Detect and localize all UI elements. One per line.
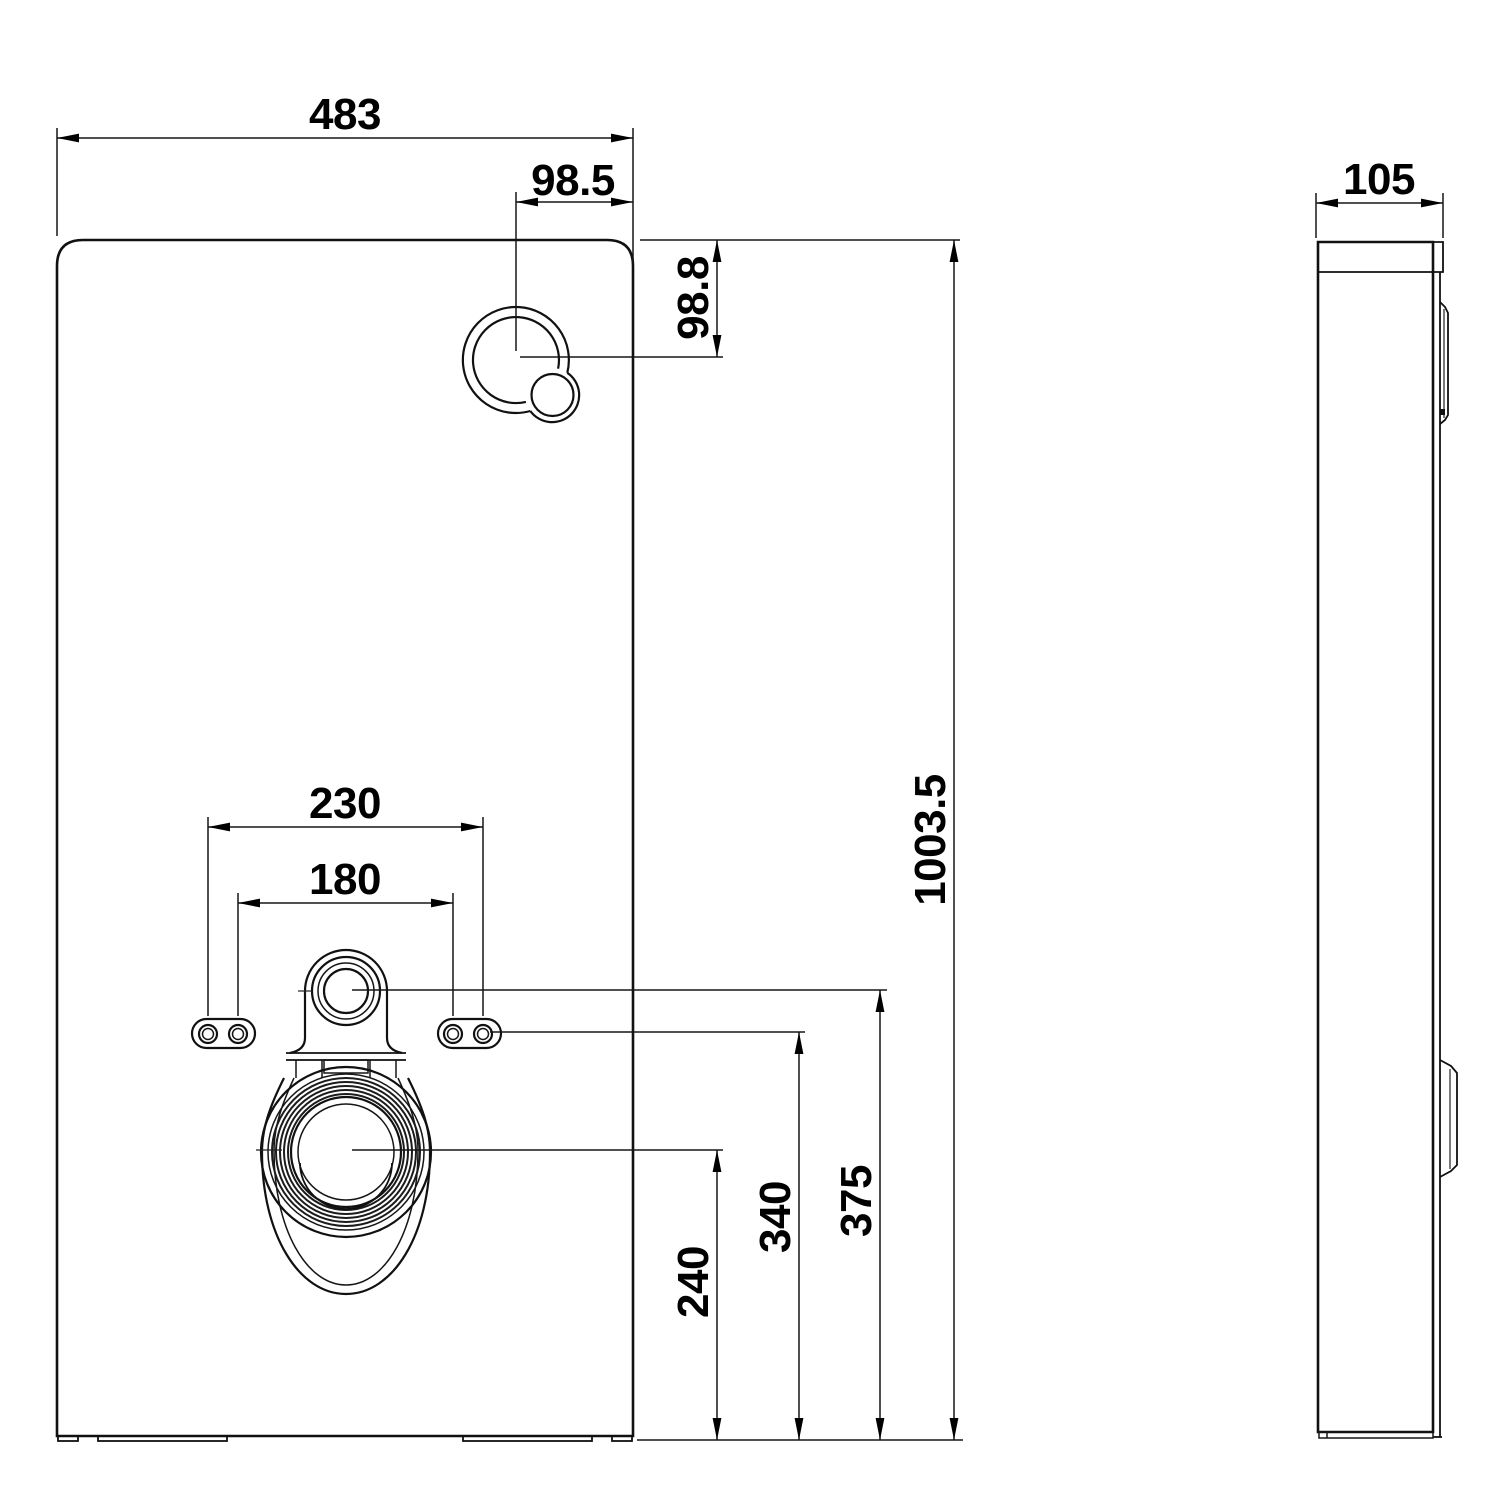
dim-depth: 105 [1316,155,1443,238]
outlet-elbow-arc [300,1163,392,1209]
inlet-housing [290,950,402,1053]
side-view [1318,242,1457,1438]
dim-label-fixing-holes-height: 340 [751,1181,800,1253]
outlet-housing-outer [262,1078,430,1294]
dim-label-depth: 105 [1343,155,1415,204]
dim-label-overall-height: 1003.5 [906,774,955,906]
dim-label-button-offset-x: 98.5 [531,156,615,205]
technical-drawing: 483 98.5 98.8 230 180 375 340 [0,0,1500,1500]
water-inlet [286,950,406,1078]
outlet-bore-inner [298,1104,394,1200]
dim-button-offset-y: 98.8 [520,240,723,357]
dim-label-overall-width: 483 [309,90,381,139]
inlet-ring-outer [312,957,380,1025]
side-flush-unit-latch [1440,409,1445,415]
outlet-thread-rings [272,1078,420,1226]
dim-label-fixing-span-outer: 230 [309,779,381,828]
outlet-flange-outer [261,1067,431,1237]
dim-label-fixing-span-inner: 180 [309,855,381,904]
side-top-cap-edge [1433,242,1443,272]
inlet-ring-mid [318,963,374,1019]
fixing-bracket-right [438,1019,501,1048]
side-connection-block [1440,1060,1457,1177]
dim-fixing-holes-height: 340 [490,1032,805,1440]
dim-label-inlet-center-height: 375 [832,1165,881,1237]
side-panel-outline [1318,242,1433,1432]
dim-label-button-offset-y: 98.8 [669,256,718,340]
dim-inlet-center-height: 375 [352,990,887,1440]
drain-outlet [256,1067,431,1294]
front-view [57,240,633,1441]
flush-button-small-inner-ring [532,374,574,416]
technical-drawing-canvas: 483 98.5 98.8 230 180 375 340 [0,0,1500,1500]
inlet-bore [324,969,368,1013]
front-panel-outline [57,240,633,1436]
outlet-bore-outer [291,1097,401,1207]
dim-fixing-span-inner: 180 [238,855,453,1016]
fixing-bracket-left [192,1019,255,1048]
dim-label-outlet-center-height: 240 [669,1246,718,1318]
flush-button [463,307,579,422]
